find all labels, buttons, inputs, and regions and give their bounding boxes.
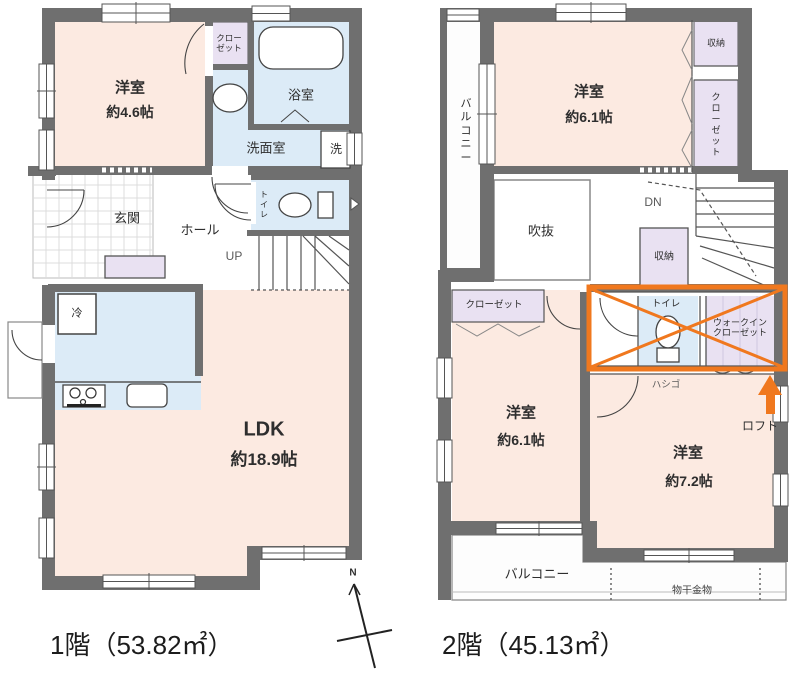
window	[477, 64, 497, 164]
label-fridge: 冷	[72, 308, 83, 321]
label-toilet-1f: トイレ	[259, 190, 269, 219]
washbasin-icon	[213, 84, 247, 112]
window	[103, 573, 195, 590]
label-room46-size: 約4.6帖	[106, 104, 153, 120]
window	[347, 133, 362, 165]
stairs-up	[251, 236, 349, 290]
window	[437, 358, 452, 398]
bathtub-icon	[259, 27, 343, 69]
window	[437, 440, 452, 482]
window	[252, 6, 290, 21]
label-closet-right: クローゼット	[711, 92, 722, 158]
label-washer: 洗	[330, 143, 342, 157]
label-wic: ウォークインクローゼット	[711, 318, 769, 339]
compass-icon	[337, 584, 392, 668]
label-void: 吹抜	[528, 225, 554, 240]
label-washroom: 洗面室	[246, 142, 285, 157]
floor1-title: 1階（53.82㎡）	[50, 631, 234, 661]
window	[496, 521, 582, 536]
label-storage-top: 収納	[707, 38, 725, 48]
label-room-br-name: 洋室	[673, 444, 703, 461]
label-room-top-name: 洋室	[574, 83, 604, 100]
label-room46-name: 洋室	[115, 79, 145, 96]
label-room-top-size: 約6.1帖	[565, 109, 612, 125]
label-loft: ロフト	[742, 420, 778, 434]
shoe-cabinet	[105, 256, 165, 278]
label-ladder: ハシゴ	[652, 381, 681, 392]
window	[37, 64, 56, 118]
window	[644, 548, 734, 563]
label-balcony-left: バルコニー	[460, 98, 473, 165]
label-bath: 浴室	[288, 89, 314, 104]
window	[39, 518, 54, 558]
label-ldk-size: 約18.9帖	[230, 450, 297, 470]
label-balcony-bottom: バルコニー	[505, 568, 570, 583]
label-hanger: 物干金物	[672, 585, 712, 597]
window	[262, 545, 346, 561]
window	[556, 2, 626, 23]
toilet-tank-2f	[657, 348, 679, 362]
label-up: UP	[226, 250, 243, 264]
label-toilet-2f: トイレ	[652, 300, 681, 311]
sink-icon	[127, 384, 167, 407]
floorplan-canvas: 洋室 約4.6帖 クローゼット 浴室 洗面室 洗 トイレ 玄関 ホール UP 冷…	[0, 0, 800, 682]
floor2-title: 2階（45.13㎡）	[442, 631, 626, 661]
window	[37, 444, 56, 490]
label-closet-1f: クローゼット	[214, 34, 244, 54]
label-hall: ホール	[180, 224, 219, 239]
floorplan-drawing	[0, 0, 800, 682]
washroom-door-arc	[212, 177, 248, 213]
window	[39, 130, 54, 170]
label-dn: DN	[644, 196, 661, 210]
window	[447, 9, 479, 21]
toilet-icon-1f	[279, 193, 311, 217]
toilet-tank-1f	[318, 192, 333, 218]
window	[102, 2, 170, 24]
label-genkan: 玄関	[114, 212, 140, 227]
label-ldk: LDK	[243, 419, 284, 442]
label-closet-left-2f: クローゼット	[465, 301, 522, 312]
label-room-br-size: 約7.2帖	[665, 473, 712, 489]
label-room-bl-size: 約6.1帖	[497, 432, 544, 448]
toilet-door-arc-1f	[215, 184, 251, 220]
label-storage-mid: 収納	[654, 251, 674, 263]
inner-hall-door-arc	[600, 298, 638, 336]
label-room-bl-name: 洋室	[506, 404, 536, 421]
compass-north-label: N	[349, 567, 356, 579]
window	[773, 474, 788, 506]
